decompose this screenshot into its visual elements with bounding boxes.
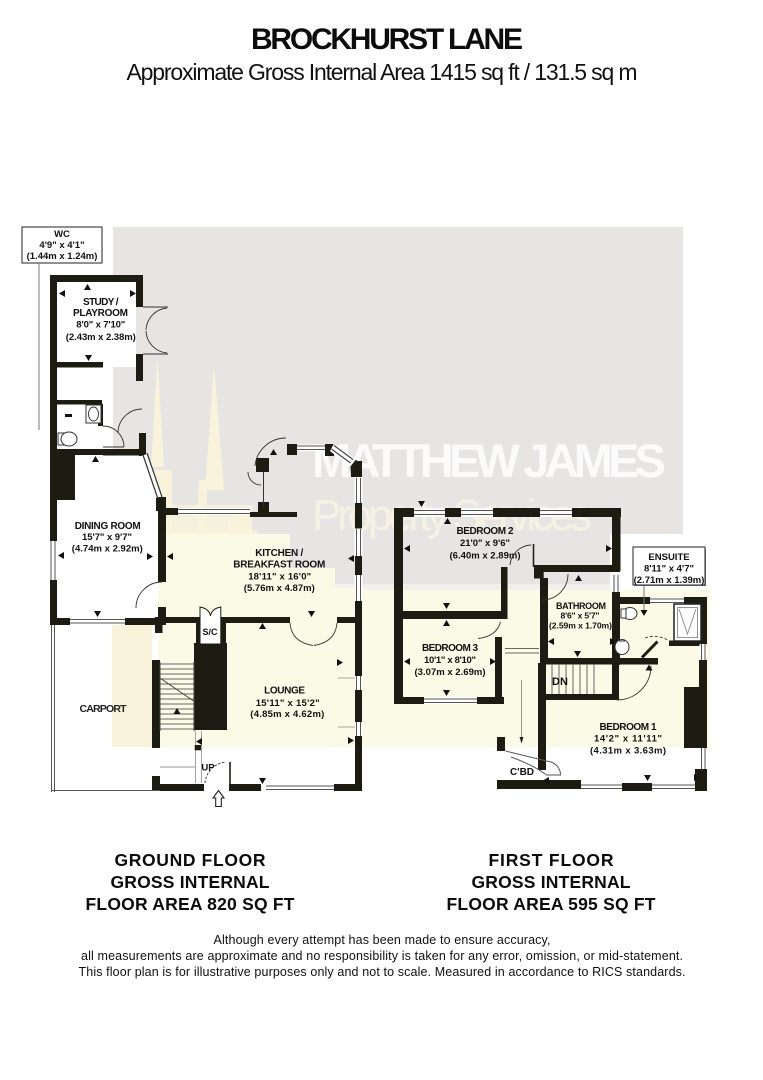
svg-text:BEDROOM 3: BEDROOM 3: [422, 643, 478, 654]
svg-text:STUDY /: STUDY /: [83, 297, 119, 308]
svg-text:8'11" x 4'7": 8'11" x 4'7": [644, 564, 694, 575]
svg-text:BATHROOM: BATHROOM: [556, 601, 606, 611]
svg-text:(4.74m x 2.92m): (4.74m x 2.92m): [72, 544, 143, 555]
svg-text:8'6" x 5'7": 8'6" x 5'7": [561, 611, 600, 621]
svg-text:(2.59m x 1.70m): (2.59m x 1.70m): [549, 621, 612, 631]
svg-text:21'0" x 9'6": 21'0" x 9'6": [460, 538, 510, 549]
svg-text:8'0" x 7'10": 8'0" x 7'10": [76, 320, 125, 331]
svg-text:15'7" x 9'7": 15'7" x 9'7": [82, 532, 132, 543]
svg-text:(2.43m x 2.38m): (2.43m x 2.38m): [66, 332, 136, 343]
svg-text:FIRST FLOOR: FIRST FLOOR: [489, 850, 614, 870]
svg-text:MATTHEW JAMES: MATTHEW JAMES: [312, 434, 666, 487]
svg-text:S/C: S/C: [202, 627, 218, 637]
svg-text:GROUND FLOOR: GROUND FLOOR: [115, 850, 266, 870]
svg-text:UP: UP: [201, 763, 215, 774]
svg-text:(1.44m x 1.24m): (1.44m x 1.24m): [27, 251, 98, 262]
svg-text:(6.40m x 2.89m): (6.40m x 2.89m): [450, 551, 521, 562]
svg-text:DINING ROOM: DINING ROOM: [75, 521, 141, 532]
svg-text:(5.76m x 4.87m): (5.76m x 4.87m): [244, 583, 315, 594]
svg-text:WC: WC: [54, 229, 70, 240]
svg-text:DN: DN: [552, 676, 568, 688]
svg-text:This floor plan is for illustr: This floor plan is for illustrative purp…: [79, 965, 686, 979]
svg-text:GROSS INTERNAL: GROSS INTERNAL: [472, 872, 631, 892]
svg-text:BREAKFAST ROOM: BREAKFAST ROOM: [233, 560, 325, 571]
svg-text:(2.71m x 1.39m): (2.71m x 1.39m): [634, 575, 705, 586]
svg-text:4'9" x 4'1": 4'9" x 4'1": [39, 240, 84, 251]
svg-text:Although every attempt has bee: Although every attempt has been made to …: [214, 933, 551, 947]
svg-text:10'1" x 8'10": 10'1" x 8'10": [424, 655, 476, 666]
svg-text:FLOOR AREA 820 SQ FT: FLOOR AREA 820 SQ FT: [86, 894, 295, 914]
svg-text:(4.85m x 4.62m): (4.85m x 4.62m): [250, 709, 324, 720]
svg-text:GROSS INTERNAL: GROSS INTERNAL: [111, 872, 270, 892]
svg-text:14'2" x 11'11": 14'2" x 11'11": [594, 734, 662, 745]
svg-text:KITCHEN /: KITCHEN /: [255, 548, 303, 559]
svg-text:C'BD: C'BD: [510, 767, 534, 778]
svg-text:ENSUITE: ENSUITE: [648, 552, 689, 563]
svg-text:BEDROOM 1: BEDROOM 1: [600, 722, 657, 733]
svg-text:BEDROOM 2: BEDROOM 2: [457, 526, 514, 537]
svg-text:FLOOR AREA 595 SQ FT: FLOOR AREA 595 SQ FT: [447, 894, 656, 914]
svg-text:18'11" x 16'0": 18'11" x 16'0": [248, 572, 311, 583]
svg-text:(3.07m x 2.69m): (3.07m x 2.69m): [415, 667, 486, 678]
svg-text:Approximate Gross Internal Are: Approximate Gross Internal Area 1415 sq …: [127, 59, 638, 85]
svg-text:(4.31m x 3.63m): (4.31m x 3.63m): [590, 746, 666, 757]
svg-text:LOUNGE: LOUNGE: [264, 686, 305, 697]
svg-text:PLAYROOM: PLAYROOM: [73, 308, 128, 319]
svg-text:all measurements are approxima: all measurements are approximate and no …: [81, 949, 683, 963]
svg-text:15'11" x 15'2": 15'11" x 15'2": [256, 698, 320, 709]
svg-text:BROCKHURST LANE: BROCKHURST LANE: [251, 23, 523, 56]
svg-text:CARPORT: CARPORT: [80, 703, 128, 715]
